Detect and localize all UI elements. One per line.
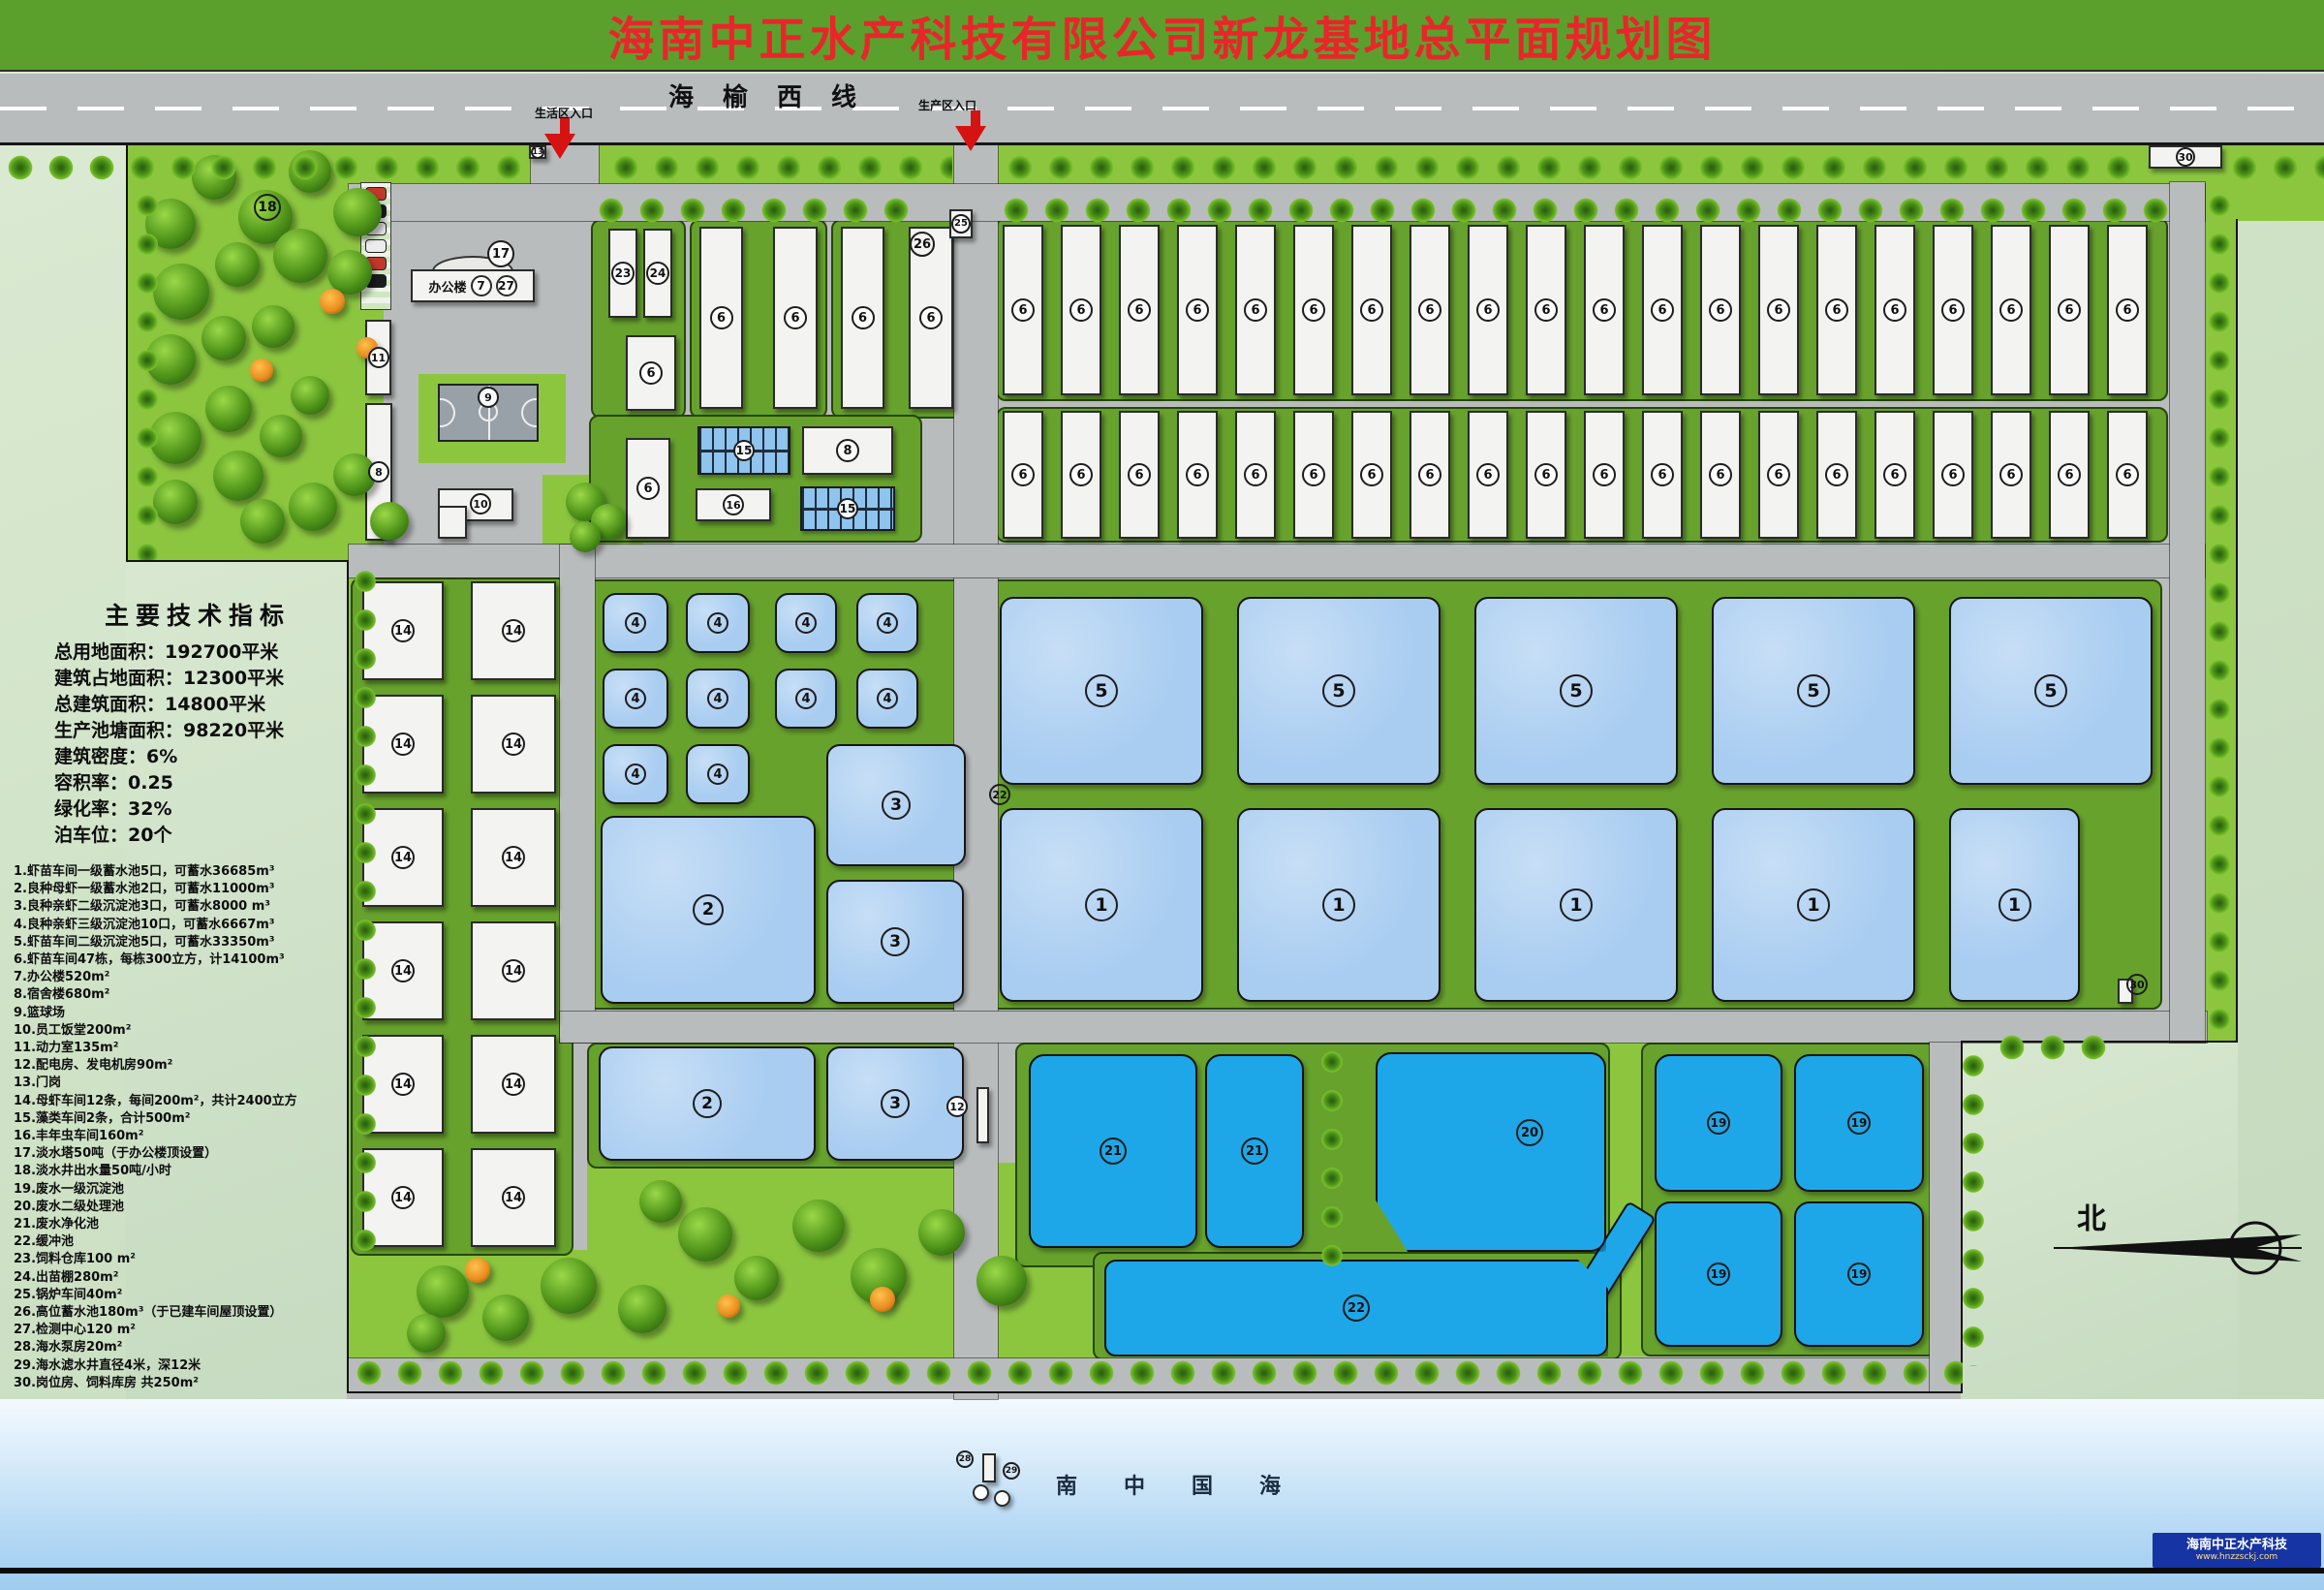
pond-label: 5 — [1797, 674, 1830, 707]
legend-item: 4.良种亲虾三级沉淀池10口，可蓄水6667m³ — [14, 917, 297, 934]
tree — [734, 1256, 779, 1300]
pond-label: 19 — [1707, 1263, 1730, 1286]
treatment-pond-20 — [1376, 1052, 1606, 1252]
pond-label: 1 — [1999, 889, 2031, 921]
legend-item: 27.检测中心120 m² — [14, 1322, 297, 1339]
building-label: 23 — [611, 262, 635, 285]
legend-item: 26.高位蓄水池180m³（于已建车间屋顶设置） — [14, 1304, 297, 1322]
pond-label: 2 — [693, 1089, 722, 1118]
pond-label: 4 — [625, 688, 646, 709]
indicators-title: 主要技术指标 — [105, 597, 291, 632]
pond-label: 4 — [877, 612, 898, 634]
tree-hedge — [0, 147, 528, 188]
pond-label: 5 — [1560, 674, 1593, 707]
pond-label: 4 — [795, 612, 817, 634]
pond-label: 4 — [707, 612, 728, 634]
building-label: 14 — [502, 619, 525, 642]
company-logo: 海南中正水产科技 www.hnzzsckj.com — [2153, 1533, 2321, 1568]
road — [2170, 182, 2205, 1043]
legend-item: 1.虾苗车间一级蓄水池5口，可蓄水36685m³ — [14, 863, 297, 881]
bottom-border-line — [0, 1568, 2324, 1574]
tree — [618, 1285, 666, 1333]
compass-north-label: 北 — [2077, 1202, 2106, 1236]
legend-item: 20.废水二级处理池 — [14, 1199, 297, 1216]
shed-label: 6 — [1302, 298, 1325, 322]
legend-item: 9.篮球场 — [14, 1005, 297, 1022]
pond-label: 5 — [2034, 674, 2067, 707]
tree — [213, 451, 263, 501]
pond-label: 2 — [693, 894, 724, 925]
building-label: 14 — [391, 1073, 415, 1096]
marker-9: 9 — [478, 387, 499, 408]
shed-label: 6 — [1360, 463, 1383, 486]
road-center-line — [0, 107, 2324, 110]
tree — [240, 499, 285, 544]
indicators-list: 总用地面积：192700平米建筑占地面积：12300平米总建筑面积：14800平… — [54, 639, 284, 849]
marker-22: 22 — [989, 784, 1010, 805]
boundary-fence — [126, 560, 349, 562]
legend-item: 16.丰年虫车间160m² — [14, 1128, 297, 1145]
car — [365, 239, 387, 253]
building-label: 11 — [368, 347, 389, 368]
indicator-line: 容积率：0.25 — [54, 770, 284, 796]
marker-10: 10 — [470, 493, 491, 514]
building-label: 30 — [2176, 147, 2195, 167]
shed-label: 6 — [1825, 298, 1848, 322]
indicator-line: 绿化率：32% — [54, 796, 284, 823]
shed-label: 6 — [1651, 298, 1674, 322]
shed-label: 6 — [1941, 463, 1965, 486]
pond-label: 4 — [625, 764, 646, 785]
building-label: 8 — [836, 439, 859, 462]
shed-label: 6 — [1767, 298, 1790, 322]
seawater-well — [973, 1484, 989, 1501]
pond-label: 22 — [1343, 1294, 1370, 1322]
office-name: 办公楼 — [428, 277, 466, 296]
building-label: 24 — [646, 262, 669, 285]
compass: 北 — [2038, 1188, 2319, 1294]
building-label: 6 — [784, 306, 807, 329]
tree-hedge — [349, 1353, 1963, 1395]
legend-item: 23.饲料仓库100 m² — [14, 1251, 297, 1268]
indicator-line: 总用地面积：192700平米 — [54, 639, 284, 666]
canteen-building-wing — [438, 506, 467, 539]
shed-label: 6 — [1418, 463, 1441, 486]
legend-item: 11.动力室135m² — [14, 1040, 297, 1057]
office-building: 办公楼 7 27 — [411, 269, 535, 302]
tree — [370, 502, 409, 541]
building — [976, 1087, 989, 1143]
pond-label: 4 — [707, 688, 728, 709]
pond-label: 3 — [881, 1089, 910, 1118]
production-entrance-arrowhead — [955, 126, 986, 151]
pond-label: 4 — [795, 688, 817, 709]
tree — [327, 250, 372, 295]
shed-label: 6 — [1534, 463, 1558, 486]
shrub — [465, 1258, 490, 1283]
pond-label: 4 — [707, 764, 728, 785]
shed-label: 6 — [1128, 298, 1151, 322]
indicator-line: 生产池塘面积：98220平米 — [54, 718, 284, 744]
shed-label: 6 — [1418, 298, 1441, 322]
shed-label: 6 — [1011, 463, 1035, 486]
pond-label: 19 — [1847, 1263, 1871, 1286]
tree — [792, 1200, 845, 1252]
building-label: 14 — [391, 959, 415, 982]
shed-label: 6 — [2058, 298, 2081, 322]
shed-label: 6 — [1302, 463, 1325, 486]
tree — [205, 386, 252, 432]
highway-band: 海榆西线 — [0, 74, 2324, 145]
tree-hedge — [605, 147, 952, 188]
boundary-fence — [126, 145, 128, 562]
company-name: 海南中正水产科技 — [2186, 1538, 2287, 1552]
shed-label: 6 — [2058, 463, 2081, 486]
tree-hedge — [2224, 147, 2324, 188]
legend-list: 1.虾苗车间一级蓄水池5口，可蓄水36685m³2.良种母虾一级蓄水池2口，可蓄… — [14, 863, 297, 1392]
shrub — [320, 289, 345, 314]
legend-item: 12.配电房、发电机房90m² — [14, 1057, 297, 1075]
shed-label: 6 — [1709, 298, 1732, 322]
shrub — [870, 1287, 895, 1312]
building-label: 14 — [502, 959, 525, 982]
shrub — [717, 1294, 740, 1318]
tree — [639, 1180, 682, 1223]
office-label-27: 27 — [496, 275, 517, 296]
shed-label: 6 — [1883, 298, 1906, 322]
marker-26: 26 — [910, 232, 935, 257]
legend-item: 10.员工饭堂200m² — [14, 1022, 297, 1040]
tree-hedge — [1000, 147, 2149, 188]
legend-item: 19.废水一级沉淀池 — [14, 1181, 297, 1199]
legend-item: 24.出苗棚280m² — [14, 1269, 297, 1287]
pond-label: 3 — [881, 927, 910, 956]
tree — [273, 229, 327, 283]
marker-30: 30 — [2126, 974, 2148, 995]
pond-label: 21 — [1241, 1138, 1268, 1165]
tree-hedge — [1992, 1027, 2118, 1068]
building — [982, 1453, 996, 1482]
tree-hedge — [1955, 1046, 1996, 1366]
building-label: 14 — [502, 1186, 525, 1209]
marker-18: 18 — [254, 194, 281, 221]
legend-item: 18.淡水井出水量50吨/小时 — [14, 1163, 297, 1180]
pond-label: 5 — [1322, 674, 1355, 707]
shed-label: 6 — [2116, 463, 2139, 486]
living-entrance-arrow — [560, 118, 570, 134]
tree — [541, 1258, 597, 1314]
legend-item: 15.藻类车间2条，合计500m² — [14, 1110, 297, 1128]
pond-label: 3 — [882, 791, 911, 820]
road — [349, 545, 2205, 577]
legend-item: 5.虾苗车间二级沉淀池5口，可蓄水33350m³ — [14, 934, 297, 951]
court-key-right — [521, 398, 537, 427]
tree — [201, 316, 246, 360]
building-label: 6 — [636, 477, 660, 500]
pond-label: 4 — [877, 688, 898, 709]
shed-label: 6 — [1593, 298, 1616, 322]
shed-label: 6 — [1128, 463, 1151, 486]
building-label: 14 — [391, 619, 415, 642]
pond-label: 1 — [1322, 889, 1355, 921]
building-label: 14 — [391, 846, 415, 869]
shed-label: 6 — [1360, 298, 1383, 322]
building-label: 14 — [502, 1073, 525, 1096]
tree — [289, 483, 337, 531]
building-label: 6 — [852, 306, 875, 329]
legend-item: 2.良种母虾一级蓄水池2口，可蓄水11000m³ — [14, 881, 297, 898]
shed-label: 6 — [1767, 463, 1790, 486]
shrub — [250, 359, 273, 382]
shed-label: 6 — [1186, 298, 1209, 322]
tree — [260, 415, 302, 457]
shed-label: 6 — [1825, 463, 1848, 486]
indicator-line: 泊车位：20个 — [54, 823, 284, 849]
pond-label: 1 — [1560, 889, 1593, 921]
company-url: www.hnzzsckj.com — [2196, 1552, 2278, 1563]
tree-hedge — [2201, 186, 2238, 1041]
shed-label: 6 — [1709, 463, 1732, 486]
indicator-line: 建筑密度：6% — [54, 744, 284, 770]
page-title: 海南中正水产科技有限公司新龙基地总平面规划图 — [607, 1, 1716, 69]
shed-label: 6 — [2116, 298, 2139, 322]
building-label: 6 — [639, 361, 663, 385]
indicator-line: 总建筑面积：14800平米 — [54, 692, 284, 718]
shed-label: 6 — [1186, 463, 1209, 486]
shed-label: 6 — [1244, 463, 1267, 486]
shed-label: 6 — [1999, 463, 2023, 486]
legend-item: 21.废水净化池 — [14, 1216, 297, 1233]
pond-label: 19 — [1847, 1111, 1871, 1135]
living-entrance-arrowhead — [544, 134, 575, 159]
shed-label: 6 — [1651, 463, 1674, 486]
tree — [678, 1207, 732, 1262]
legend-item: 13.门岗 — [14, 1075, 297, 1092]
building-label: 14 — [502, 733, 525, 756]
marker-17: 17 — [487, 240, 514, 267]
tree — [482, 1294, 529, 1341]
building-label: 16 — [723, 494, 744, 515]
legend-item: 14.母虾车间12条，每间200m²，共计2400立方 — [14, 1093, 297, 1110]
legend-item: 28.海水泵房20m² — [14, 1339, 297, 1356]
title-bar: 海南中正水产科技有限公司新龙基地总平面规划图 — [0, 0, 2324, 72]
road — [560, 1012, 2207, 1043]
legend-item: 29.海水滤水井直径4米，深12米 — [14, 1357, 297, 1375]
legend-item: 7.办公楼520m² — [14, 969, 297, 986]
shed-label: 6 — [1534, 298, 1558, 322]
pond-label: 1 — [1085, 889, 1118, 921]
marker-15: 15 — [837, 498, 858, 519]
tree — [333, 188, 382, 236]
shed-label: 6 — [1941, 298, 1965, 322]
building-label: 6 — [710, 306, 733, 329]
production-entrance-arrow — [971, 110, 980, 126]
legend-item: 8.宿舍楼680m² — [14, 986, 297, 1004]
pond-label: 4 — [625, 612, 646, 634]
shed-label: 6 — [1883, 463, 1906, 486]
legend-item: 6.虾苗车间47栋，每栋300立方，计14100m³ — [14, 951, 297, 969]
shed-label: 6 — [1011, 298, 1035, 322]
marker-29: 29 — [1003, 1462, 1020, 1480]
building-label: 14 — [391, 1186, 415, 1209]
pond-label: 1 — [1797, 889, 1830, 921]
building-label: 25 — [951, 214, 971, 234]
shed-label: 6 — [1069, 463, 1093, 486]
shed-label: 6 — [1244, 298, 1267, 322]
production-entrance-label: 生产区入口 — [918, 97, 976, 113]
tree-hedge — [996, 190, 2168, 227]
building-label: 8 — [368, 461, 389, 483]
office-label-7: 7 — [471, 275, 492, 296]
tree — [417, 1265, 469, 1318]
legend-item: 30.岗位房、饲料库房 共250m² — [14, 1375, 297, 1392]
pond-label: 21 — [1100, 1138, 1127, 1165]
tree — [976, 1256, 1027, 1306]
indicator-line: 建筑占地面积：12300平米 — [54, 666, 284, 692]
highway-name: 海榆西线 — [668, 78, 885, 113]
legend-item: 25.锅炉车间40m² — [14, 1287, 297, 1304]
tree-hedge — [347, 562, 384, 1252]
shed-label: 6 — [1593, 463, 1616, 486]
building-label: 14 — [502, 846, 525, 869]
seawater-well — [994, 1490, 1010, 1507]
shed-label: 6 — [1476, 298, 1500, 322]
building-label: 6 — [919, 306, 943, 329]
legend-item: 3.良种亲虾二级沉淀池3口，可蓄水8000 m³ — [14, 898, 297, 916]
building-label: 14 — [391, 733, 415, 756]
shed-label: 6 — [1476, 463, 1500, 486]
pond-label: 5 — [1085, 674, 1118, 707]
sea-name: 南中国海 — [1056, 1469, 1327, 1500]
tree-hedge — [591, 190, 924, 227]
shed-label: 6 — [1069, 298, 1093, 322]
marker-15: 15 — [733, 440, 755, 461]
marker-12: 12 — [946, 1096, 968, 1117]
court-key-left — [440, 398, 455, 427]
shed-label: 6 — [1999, 298, 2023, 322]
tree — [570, 521, 601, 552]
pond-label: 19 — [1707, 1111, 1730, 1135]
legend-item: 17.淡水塔50吨（于办公楼顶设置） — [14, 1145, 297, 1163]
tree — [918, 1209, 965, 1256]
tree — [291, 376, 329, 415]
pond-label: 20 — [1516, 1119, 1543, 1146]
tree-hedge — [1314, 1043, 1356, 1267]
site-plan-map: 海南中正水产科技有限公司新龙基地总平面规划图 海榆西线 生活区入口 生产区入口 … — [0, 0, 2324, 1590]
legend-item: 22.缓冲池 — [14, 1233, 297, 1251]
tree — [252, 305, 294, 348]
tree — [215, 242, 260, 287]
marker-28: 28 — [956, 1450, 974, 1468]
tree-hedge — [129, 186, 168, 560]
road — [560, 545, 595, 1043]
building-label: 13 — [531, 145, 544, 159]
tree — [407, 1314, 446, 1353]
